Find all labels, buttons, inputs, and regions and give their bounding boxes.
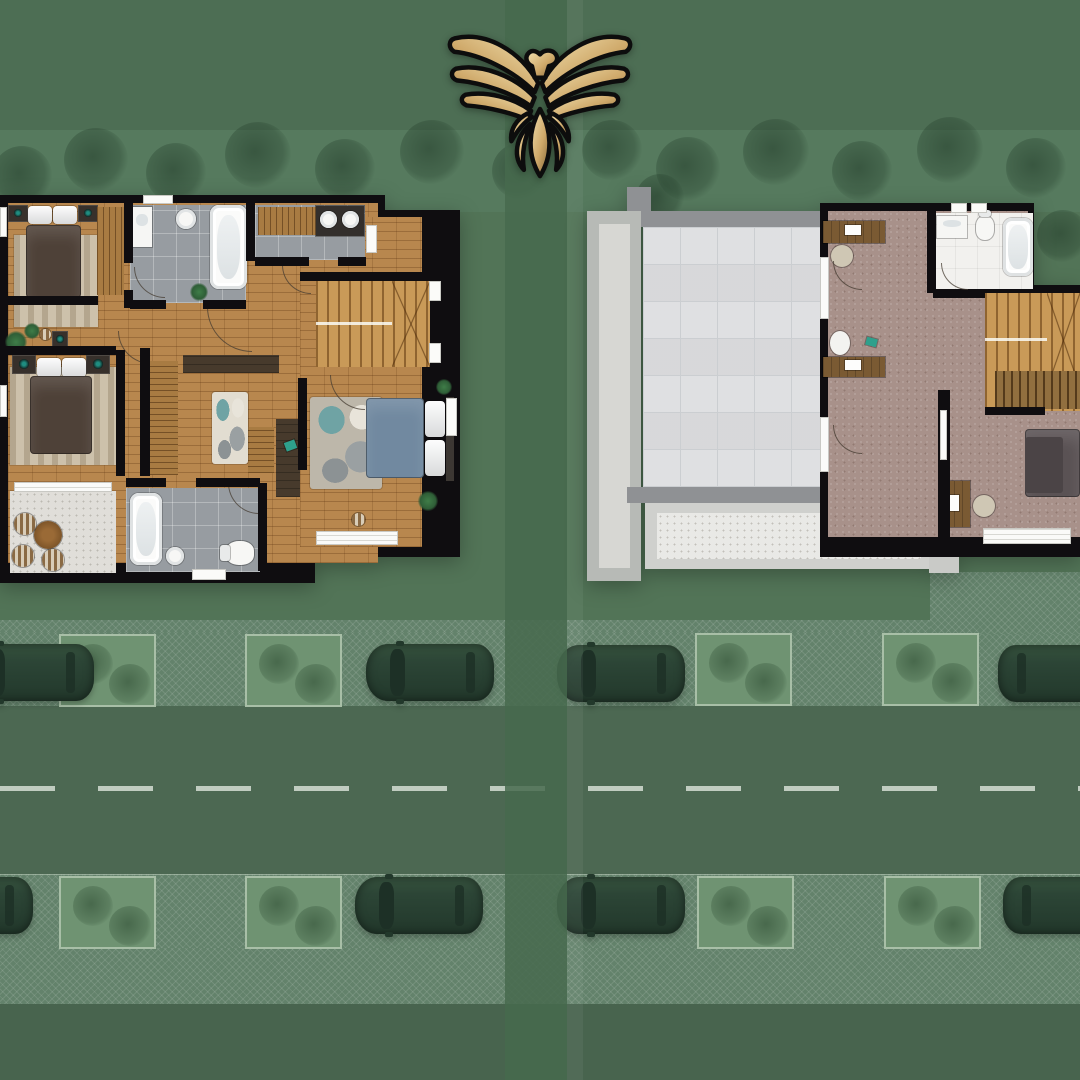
car-rear-window: [657, 653, 666, 694]
bush: [711, 886, 751, 926]
window: [971, 203, 987, 213]
bush: [932, 663, 974, 703]
bush: [295, 906, 337, 946]
car-rear-window: [5, 885, 14, 926]
closet-rack: [248, 427, 274, 473]
stool: [40, 329, 51, 340]
car-mirror: [587, 932, 595, 937]
bush: [109, 906, 151, 946]
hall-cabinet: [52, 331, 68, 347]
nightstand: [8, 205, 28, 222]
car-mirror: [587, 874, 595, 879]
grass-planter: [245, 876, 342, 949]
bed-pillow: [425, 401, 445, 437]
bush: [109, 664, 151, 704]
bush: [259, 644, 299, 684]
window: [143, 195, 173, 204]
bed-pillow: [425, 440, 445, 476]
window: [820, 417, 829, 472]
bathtub: [210, 205, 247, 289]
tree: [917, 117, 983, 183]
window: [0, 207, 7, 237]
tree: [225, 122, 291, 188]
window: [316, 531, 398, 545]
bathroom-sink: [132, 207, 152, 247]
site-plan-scene: [0, 0, 1080, 1080]
desk-chair: [830, 331, 850, 355]
car-mirror: [0, 641, 4, 646]
bathtub: [130, 493, 162, 565]
wall-segment: [0, 296, 98, 305]
car-roof: [601, 884, 651, 927]
nightstand: [86, 355, 110, 374]
bush: [745, 663, 787, 703]
parked-car: [355, 877, 483, 934]
wall-segment: [203, 300, 246, 309]
bed-pillow: [53, 206, 77, 224]
wall-segment: [116, 350, 125, 476]
bush: [896, 643, 936, 683]
plant: [418, 491, 438, 511]
bush: [295, 664, 337, 704]
sliding-door: [14, 482, 112, 492]
car-windshield: [581, 882, 596, 929]
wall-segment: [196, 478, 260, 487]
floorplan-roof-floor: [583, 185, 1080, 635]
grass-planter: [884, 876, 981, 949]
stair-winders: [392, 281, 430, 367]
window: [983, 528, 1071, 544]
plant: [24, 323, 40, 339]
tree: [64, 128, 128, 192]
bed-throw: [1025, 437, 1063, 493]
plant: [436, 379, 452, 395]
toilet: [226, 541, 254, 565]
grass-planter: [697, 876, 794, 949]
double-vanity: [316, 206, 364, 236]
parapet: [627, 211, 821, 227]
wall-segment: [985, 407, 1045, 415]
wall-segment: [300, 272, 430, 281]
parked-car: [366, 644, 494, 701]
wall-segment: [927, 211, 936, 293]
closet-rug: [212, 392, 248, 464]
parked-car: [0, 644, 94, 701]
pedestal-sink: [166, 547, 184, 565]
parked-car: [998, 645, 1080, 702]
car-windshield: [390, 649, 405, 696]
tree: [146, 143, 206, 203]
laptop: [845, 360, 861, 370]
pedestal-sink: [176, 209, 196, 229]
wall-segment: [258, 483, 267, 571]
plant: [190, 283, 208, 301]
car-roof: [10, 651, 60, 694]
window: [951, 203, 967, 213]
car-mirror: [0, 699, 4, 704]
bush: [747, 906, 789, 946]
car-roof: [1037, 884, 1080, 927]
car-mirror: [385, 874, 393, 879]
bed: [366, 398, 424, 478]
bush: [73, 886, 113, 926]
closet: [258, 207, 316, 235]
bathtub: [1003, 218, 1033, 276]
car-rear-window: [1022, 885, 1031, 926]
bush: [898, 886, 938, 926]
window: [429, 343, 441, 363]
grass-planter: [59, 876, 156, 949]
grass-planter: [695, 633, 792, 706]
tree: [743, 119, 809, 185]
car-rear-window: [1017, 653, 1026, 694]
nightstand: [78, 205, 98, 222]
closet-cabinet: [183, 355, 279, 373]
bed-pillow: [37, 358, 61, 377]
car-mirror: [587, 700, 595, 705]
parked-car: [1003, 877, 1080, 934]
wall-segment: [255, 257, 309, 266]
car-rear-window: [657, 885, 666, 926]
balcony-chair: [12, 545, 34, 567]
laptop: [845, 225, 861, 235]
staircase: [316, 281, 430, 367]
wardrobe: [97, 207, 124, 295]
window: [940, 410, 947, 460]
wall-segment: [0, 346, 116, 355]
window: [820, 257, 829, 319]
stair-lower-flight: [995, 371, 1080, 409]
car-mirror: [396, 699, 404, 704]
bed-pillow: [28, 206, 52, 224]
closet-cabinet: [276, 419, 300, 497]
car-roof: [601, 652, 651, 695]
wall-segment: [140, 348, 150, 476]
bed-pillow: [62, 358, 86, 377]
vanity-sink: [342, 211, 359, 228]
car-windshield: [581, 650, 596, 697]
bed: [30, 376, 92, 454]
nightstand: [12, 355, 36, 374]
car-mirror: [587, 642, 595, 647]
car-mirror: [396, 641, 404, 646]
eagle-emblem-icon: [440, 24, 640, 194]
wall-segment: [246, 201, 255, 261]
grass-planter: [245, 634, 342, 707]
brand-logo: [440, 24, 640, 194]
side-path-inner: [599, 224, 630, 568]
window: [429, 281, 441, 301]
car-rear-window: [455, 885, 464, 926]
wall-segment: [298, 378, 307, 470]
parked-car: [0, 877, 33, 934]
bathroom-sink: [937, 216, 967, 238]
balcony-chair: [42, 549, 64, 571]
wall-segment: [126, 478, 166, 487]
window: [192, 569, 226, 580]
car-roof: [1032, 652, 1080, 695]
car-rear-window: [66, 652, 75, 693]
staircase: [985, 293, 1080, 411]
car-roof: [410, 651, 460, 694]
balcony-table: [34, 521, 62, 549]
car-mirror: [385, 932, 393, 937]
tree: [315, 139, 375, 199]
vanity-sink: [320, 211, 337, 228]
bush: [709, 643, 749, 683]
closet-rack: [150, 361, 178, 475]
car-windshield: [379, 882, 394, 929]
toilet: [976, 216, 994, 240]
desk-chair: [973, 495, 995, 517]
wall-segment: [130, 300, 166, 309]
wall-segment: [338, 257, 366, 266]
wall-segment: [124, 201, 133, 263]
laptop: [949, 495, 959, 511]
bush: [934, 906, 976, 946]
window: [0, 385, 7, 417]
grass-planter: [882, 633, 979, 706]
stool: [352, 513, 365, 526]
balcony-chair: [14, 513, 36, 535]
bush: [259, 886, 299, 926]
bed: [26, 225, 81, 298]
car-rear-window: [466, 652, 475, 693]
window: [366, 225, 377, 253]
car-roof: [399, 884, 449, 927]
window: [446, 398, 457, 436]
car-windshield: [0, 649, 5, 696]
floorplan-upper-floor: [0, 195, 460, 591]
